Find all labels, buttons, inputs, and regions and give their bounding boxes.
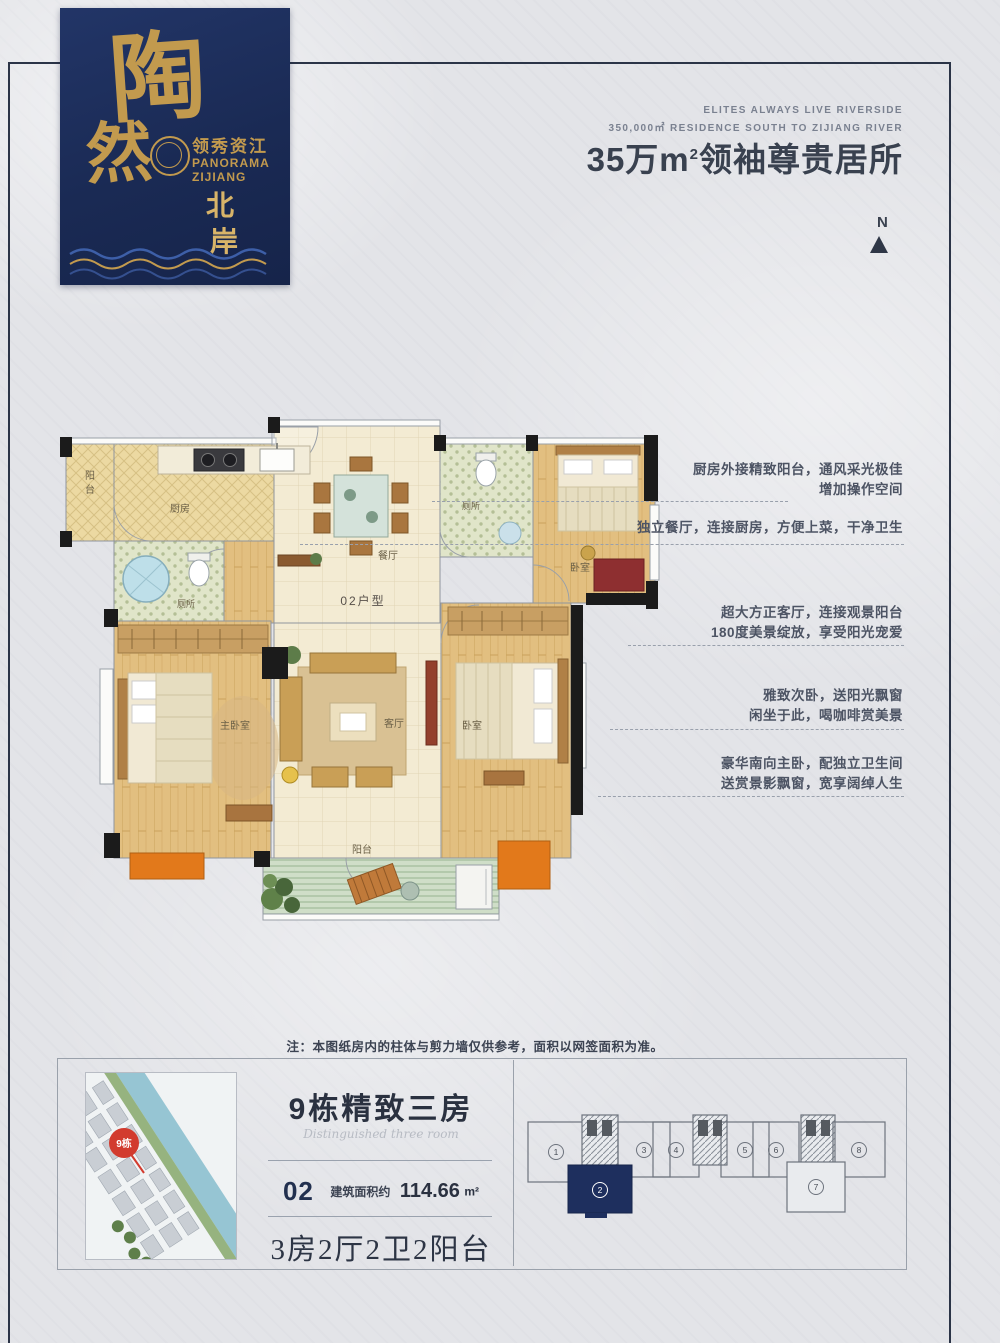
keyplan-num-7: 7 — [814, 1182, 819, 1192]
poster-page: 陶 然 领秀资江 PANORAMA ZIJIANG 北 岸 ELITES ALW… — [0, 0, 1000, 1343]
label-bath2: 厕所 — [462, 501, 480, 511]
keyplan-num-5: 5 — [743, 1145, 748, 1155]
headline-prefix: 35万m — [587, 141, 690, 178]
floorplan-drawing: 阳 台 厨房 厕所 餐厅 厕所 卧室 主卧室 客厅 卧室 阳台 02户型 — [58, 413, 662, 923]
bedroom3-furniture — [448, 607, 568, 785]
leader-line-3 — [628, 645, 904, 646]
logo-cn-title: 领秀资江 — [192, 132, 268, 157]
kitchen-counter — [158, 443, 310, 474]
logo-calligraphy-char2: 然 — [84, 118, 153, 187]
annotation-1-line1: 厨房外接精致阳台，通风采光极佳 — [693, 460, 903, 480]
annotation-5-line2: 送赏景影飘窗，宽享阔绰人生 — [721, 774, 903, 794]
leader-line-2 — [300, 544, 904, 545]
headline: 35万m2领袖尊贵居所 — [587, 133, 903, 181]
cabinet — [456, 865, 492, 909]
footer-divider — [513, 1060, 514, 1266]
annotation-4-line2: 闲坐于此，喝咖啡赏美景 — [749, 706, 903, 726]
annotation-4-line1: 雅致次卧，送阳光飘窗 — [749, 686, 903, 706]
logo-vertical-char1: 北 — [206, 184, 234, 224]
annotation-4: 雅致次卧，送阳光飘窗 闲坐于此，喝咖啡赏美景 — [749, 686, 903, 726]
brand-logo: 陶 然 领秀资江 PANORAMA ZIJIANG 北 岸 — [60, 8, 290, 285]
annotation-1: 厨房外接精致阳台，通风采光极佳 增加操作空间 — [693, 460, 903, 500]
headline-sup: 2 — [690, 146, 699, 163]
area-value: 114.66 — [400, 1180, 460, 1202]
keyplan-num-3: 3 — [642, 1145, 647, 1155]
label-bath1: 厕所 — [177, 599, 195, 609]
area-unit: m² — [464, 1185, 479, 1199]
label-bedroom3: 卧室 — [462, 719, 482, 732]
logo-wave-icon — [60, 242, 290, 282]
logo-seal-icon — [150, 136, 190, 176]
annotation-2: 独立餐厅，连接厨房，方便上菜，干净卫生 — [637, 518, 903, 538]
keyplan-num-6: 6 — [774, 1145, 779, 1155]
headline-suffix: 领袖尊贵居所 — [699, 141, 903, 178]
header-en-line2: 350,000㎡ RESIDENCE SOUTH TO ZIJIANG RIVE… — [609, 119, 904, 134]
label-dining: 餐厅 — [378, 549, 398, 562]
footer-area-row: 02 建筑面积约 114.66 m² — [250, 1176, 512, 1207]
north-label: N — [877, 214, 888, 231]
header-en-line1: ELITES ALWAYS LIVE RIVERSIDE — [703, 105, 903, 116]
annotation-3: 超大方正客厅，连接观景阳台 180度美景绽放，享受阳光宠爱 — [711, 603, 903, 643]
footer-rule-1 — [268, 1160, 492, 1161]
sofa — [310, 653, 396, 673]
label-unit-type: 02户型 — [340, 593, 385, 608]
logo-en-line1: PANORAMA — [192, 156, 270, 170]
label-living: 客厅 — [384, 717, 404, 730]
logo-en-line2: ZIJIANG — [192, 170, 246, 184]
room-hallway — [224, 541, 274, 623]
keyplan-num-2: 2 — [598, 1185, 603, 1195]
unit-number: 02 — [283, 1176, 314, 1206]
footer-title: 9栋精致三房 — [250, 1084, 512, 1128]
bay-window-bedroom2 — [650, 505, 659, 580]
desk-icon — [594, 559, 644, 591]
hall-plant-shelf — [278, 553, 322, 566]
sink-icon — [260, 449, 294, 471]
annotation-1-line2: 增加操作空间 — [693, 480, 903, 500]
leader-line-5 — [598, 796, 904, 797]
keyplan: 1 2 3 4 5 6 7 8 — [525, 1112, 897, 1222]
area-label: 建筑面积约 — [330, 1185, 390, 1199]
balcony-rail — [263, 914, 499, 920]
tv-console — [426, 661, 437, 745]
north-arrow-icon — [870, 236, 888, 253]
keyplan-num-8: 8 — [857, 1145, 862, 1155]
bay-window-master — [100, 669, 113, 784]
annotation-5: 豪华南向主卧，配独立卫生间 送赏景影飘窗，宽享阔绰人生 — [721, 754, 903, 794]
label-balcony-top-2: 台 — [85, 483, 95, 496]
annotation-3-line2: 180度美景绽放，享受阳光宠爱 — [711, 623, 903, 643]
footer-rule-2 — [268, 1216, 492, 1217]
aerial-image: 9栋 — [86, 1073, 236, 1259]
aerial-thumbnail: 9栋 — [85, 1072, 237, 1260]
label-balcony-bottom: 阳台 — [352, 843, 372, 856]
toilet2-icon — [476, 460, 496, 486]
annotation-2-line1: 独立餐厅，连接厨房，方便上菜，干净卫生 — [637, 518, 903, 538]
frame-left-line — [8, 62, 10, 1343]
toilet-icon — [189, 560, 209, 586]
annotation-3-line1: 超大方正客厅，连接观景阳台 — [711, 603, 903, 623]
frame-right-line — [949, 62, 951, 1343]
label-bedroom2: 卧室 — [570, 561, 590, 574]
leader-line-4 — [610, 729, 904, 730]
keyplan-num-4: 4 — [674, 1145, 679, 1155]
basin-icon — [499, 522, 521, 544]
leader-line-1 — [432, 501, 788, 502]
annotation-5-line1: 豪华南向主卧，配独立卫生间 — [721, 754, 903, 774]
footer-layout-text: 3房2厅2卫2阳台 — [250, 1226, 512, 1268]
label-master: 主卧室 — [220, 719, 250, 732]
badge-label: 9栋 — [116, 1137, 132, 1150]
label-kitchen: 厨房 — [170, 502, 190, 515]
footer-script-line: Distinguished three room — [250, 1127, 512, 1141]
keyplan-num-1: 1 — [554, 1147, 559, 1157]
disclaimer-note: 注：本图纸房内的柱体与剪力墙仅供参考，面积以网签面积为准。 — [0, 1036, 950, 1055]
label-balcony-top-1: 阳 — [85, 470, 95, 482]
